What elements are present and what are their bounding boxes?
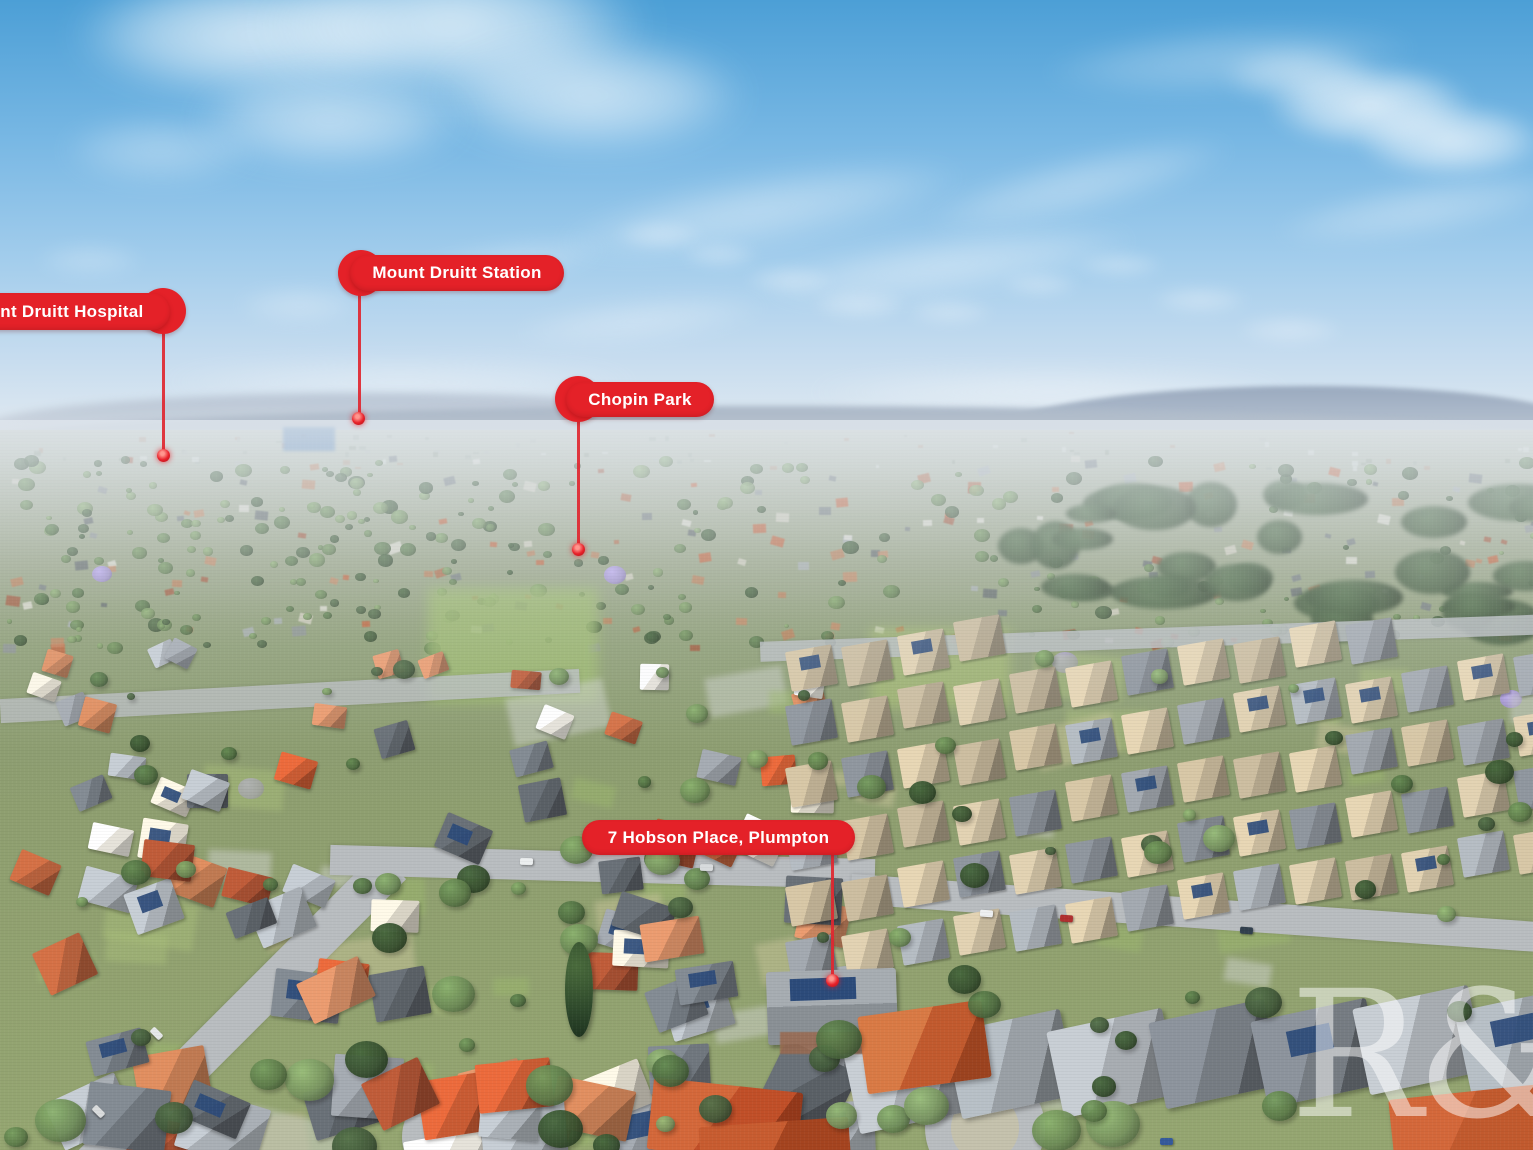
marker-pointer-line	[358, 294, 361, 415]
marker-pill: Mount Druitt Station	[350, 255, 564, 291]
marker-anchor-circle	[338, 250, 384, 296]
marker-pointer-line	[162, 330, 165, 452]
marker-location-dot	[826, 974, 839, 987]
marker-label: 7 Hobson Place, Plumpton	[608, 828, 830, 848]
marker-chopin-park: Chopin Park	[0, 0, 1533, 1150]
marker-label: Mount Druitt Station	[372, 263, 541, 283]
marker-location-dot	[157, 449, 170, 462]
marker-subject-property: 7 Hobson Place, Plumpton	[0, 0, 1533, 1150]
location-markers: Mount Druitt Hospital Mount Druitt Stati…	[0, 0, 1533, 1150]
marker-pill: Chopin Park	[566, 382, 714, 417]
marker-mount-druitt-station: Mount Druitt Station	[0, 0, 1533, 1150]
marker-label: Mount Druitt Hospital	[0, 302, 144, 322]
marker-location-dot	[572, 543, 585, 556]
marker-anchor-circle	[555, 376, 601, 422]
marker-anchor-circle	[140, 288, 186, 334]
marker-label: Chopin Park	[588, 390, 691, 410]
marker-pointer-line	[831, 853, 834, 977]
marker-mount-druitt-hospital: Mount Druitt Hospital	[0, 0, 1533, 1150]
marker-location-dot	[352, 412, 365, 425]
marker-pointer-line	[577, 420, 580, 546]
marker-pill: Mount Druitt Hospital	[0, 293, 170, 330]
marker-pill: 7 Hobson Place, Plumpton	[582, 820, 855, 855]
aerial-photo: R& Mount Druitt Hospital Mount Druitt St…	[0, 0, 1533, 1150]
